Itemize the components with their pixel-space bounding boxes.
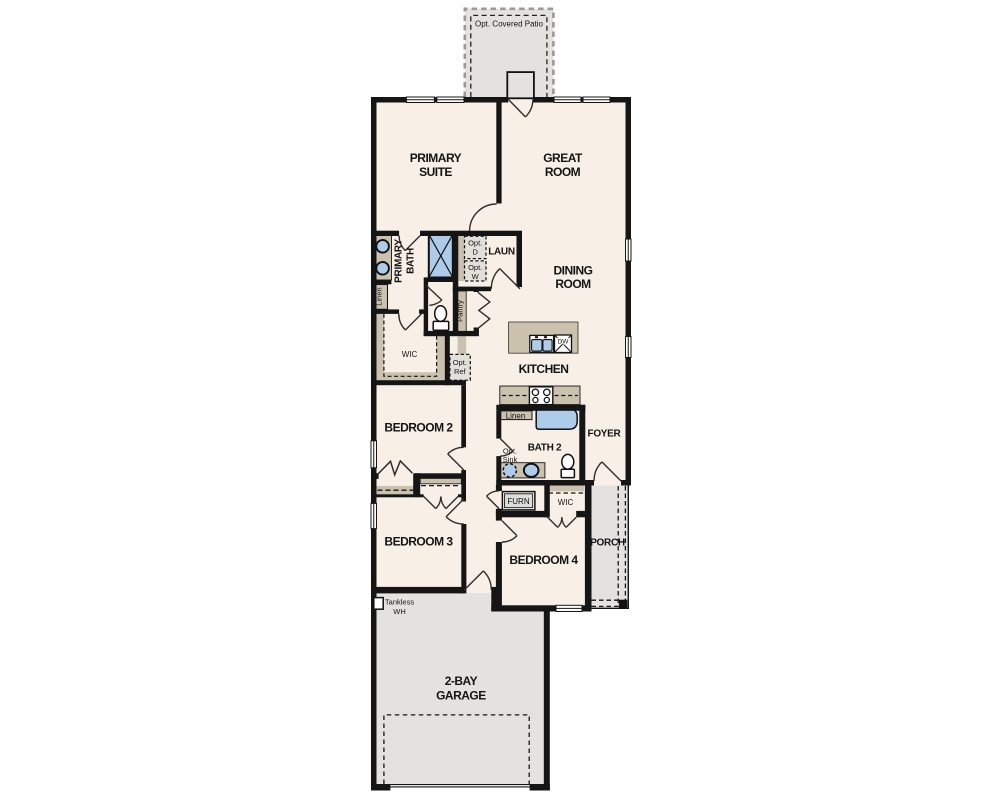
svg-text:Opt.: Opt. bbox=[468, 263, 482, 272]
svg-text:SUITE: SUITE bbox=[419, 165, 452, 179]
svg-text:WIC: WIC bbox=[558, 498, 574, 507]
svg-text:BATH: BATH bbox=[406, 248, 417, 274]
svg-text:GARAGE: GARAGE bbox=[436, 689, 486, 703]
svg-text:DW: DW bbox=[558, 339, 570, 346]
svg-text:BEDROOM 2: BEDROOM 2 bbox=[384, 421, 453, 435]
svg-text:Sink: Sink bbox=[503, 455, 518, 464]
svg-text:D: D bbox=[472, 248, 478, 257]
svg-text:Ref: Ref bbox=[454, 367, 467, 376]
svg-text:LAUN: LAUN bbox=[488, 247, 515, 258]
svg-text:PRIMARY: PRIMARY bbox=[410, 151, 462, 165]
svg-text:W: W bbox=[472, 272, 480, 281]
svg-text:FURN: FURN bbox=[507, 497, 529, 506]
svg-text:Pantry: Pantry bbox=[455, 300, 464, 322]
svg-text:Opt.: Opt. bbox=[468, 239, 482, 248]
svg-text:WIC: WIC bbox=[402, 350, 418, 359]
svg-text:PORCH: PORCH bbox=[590, 538, 625, 549]
svg-text:Opt. Covered Patio: Opt. Covered Patio bbox=[475, 20, 544, 29]
svg-text:PRIMARY: PRIMARY bbox=[394, 239, 405, 283]
svg-text:GREAT: GREAT bbox=[543, 151, 583, 165]
svg-text:KITCHEN: KITCHEN bbox=[519, 362, 569, 376]
svg-text:Linen: Linen bbox=[375, 287, 384, 305]
svg-text:ROOM: ROOM bbox=[545, 165, 581, 179]
svg-text:FOYER: FOYER bbox=[588, 429, 622, 440]
svg-text:Tankless: Tankless bbox=[385, 598, 414, 607]
svg-text:BATH 2: BATH 2 bbox=[528, 443, 562, 454]
svg-text:WH: WH bbox=[393, 607, 406, 616]
svg-text:BEDROOM 4: BEDROOM 4 bbox=[509, 553, 578, 567]
svg-text:Opt.: Opt. bbox=[453, 358, 467, 367]
svg-text:ROOM: ROOM bbox=[555, 277, 591, 291]
svg-text:BEDROOM 3: BEDROOM 3 bbox=[384, 535, 453, 549]
svg-text:Linen: Linen bbox=[506, 411, 526, 420]
svg-text:DINING: DINING bbox=[554, 264, 593, 278]
svg-text:2-BAY: 2-BAY bbox=[445, 674, 478, 688]
